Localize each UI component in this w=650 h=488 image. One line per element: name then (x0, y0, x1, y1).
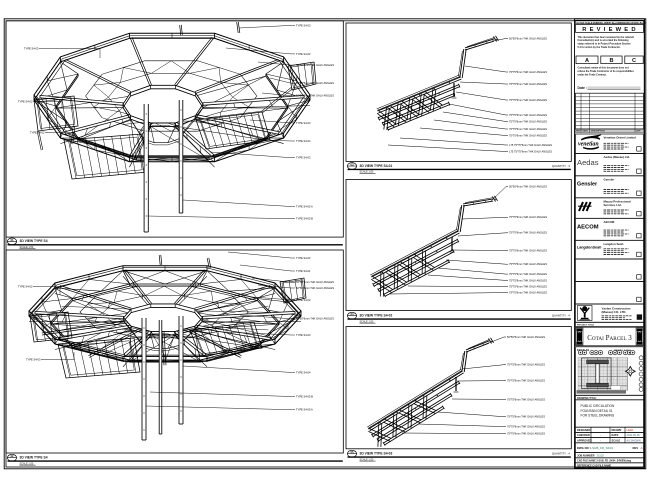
svg-text:50*50*6mm THK GALV ANGLES: 50*50*6mm THK GALV ANGLES (296, 317, 334, 321)
svg-text:3D VIEW TYPE S4-03: 3D VIEW TYPE S4-03 (360, 452, 393, 456)
svg-text:04: 04 (350, 312, 354, 316)
svg-text:TYPE S4-05 B: TYPE S4-05 B (296, 217, 313, 221)
svg-text:L75 75*75*6mm THK GALV ANGLES: L75 75*75*6mm THK GALV ANGLES (509, 143, 552, 147)
svg-text:3-SUB_FD_SK04: 3-SUB_FD_SK04 (590, 446, 614, 450)
svg-text:75*75*6mm THK GALV ANGLES: 75*75*6mm THK GALV ANGLES (509, 262, 547, 266)
svg-text:A: A (585, 58, 589, 64)
svg-text:TYPE S4-03: TYPE S4-03 (296, 333, 311, 337)
svg-text:50*50*6mm THK GALV ANGLES: 50*50*6mm THK GALV ANGLES (509, 36, 547, 40)
svg-text:LEAD: LEAD (627, 428, 634, 432)
svg-text:05: 05 (350, 450, 354, 454)
svg-text:-: - (600, 434, 601, 437)
svg-text:QUANTITY : 4: QUANTITY : 4 (552, 164, 570, 168)
svg-text:TYPE S4-02: TYPE S4-02 (296, 256, 311, 260)
svg-text:APP: APP (636, 130, 641, 133)
svg-text:03: 03 (350, 162, 354, 166)
svg-text:75*75*6mm THK GALV ANGLES: 75*75*6mm THK GALV ANGLES (509, 291, 547, 295)
svg-text:DESIGNED: DESIGNED (577, 428, 591, 432)
svg-text:SCALE: SCALE (612, 438, 621, 442)
svg-text:50*50*6mm THK GALV ANGLES: 50*50*6mm THK GALV ANGLES (296, 81, 334, 85)
svg-text:TYPE S4-03: TYPE S4-03 (26, 357, 41, 361)
svg-text:TYPE S4-03: TYPE S4-03 (24, 46, 39, 50)
svg-text:L75 75*75*6mm THK GALV ANGLES: L75 75*75*6mm THK GALV ANGLES (509, 149, 552, 153)
svg-text:3D VIEW TYPE S4: 3D VIEW TYPE S4 (20, 239, 48, 243)
svg-text:TYPE S4-02: TYPE S4-02 (18, 284, 33, 288)
svg-text:DESCRIPTION: DESCRIPTION (591, 131, 605, 133)
svg-text:TYPE S4-04: TYPE S4-04 (296, 370, 311, 374)
svg-text:CHECKED: CHECKED (577, 433, 590, 437)
svg-text:REVIEWED: REVIEWED (582, 27, 639, 33)
svg-text:75*75*6mm THK GALV ANGLES: 75*75*6mm THK GALV ANGLES (509, 248, 547, 252)
svg-text:under the Trade Contract.: under the Trade Contract. (578, 73, 607, 76)
svg-text:75*75*6mm THK GALV ANGLES: 75*75*6mm THK GALV ANGLES (507, 363, 545, 367)
svg-text:Services Ltd.: Services Ltd. (604, 203, 622, 207)
svg-text:02: 02 (10, 454, 14, 458)
svg-text:75*75*6mm THK GALV ANGLES: 75*75*6mm THK GALV ANGLES (509, 82, 547, 86)
svg-text:Aedas: Aedas (577, 158, 599, 167)
svg-text:75*75*6mm THK GALV ANGLES: 75*75*6mm THK GALV ANGLES (509, 278, 547, 282)
svg-text:3D VIEW TYPE S4-01: 3D VIEW TYPE S4-01 (360, 164, 393, 168)
svg-text:2011-03-15: 2011-03-15 (627, 433, 641, 437)
svg-text:AECOM: AECOM (577, 225, 599, 231)
svg-text:DWG NO: DWG NO (577, 446, 590, 450)
svg-text:AS SHOWN: AS SHOWN (627, 438, 641, 442)
svg-text:50*50*6mm THK GALV ANGLES: 50*50*6mm THK GALV ANGLES (296, 280, 334, 284)
svg-text:TYPE S4-03: TYPE S4-03 (296, 121, 311, 125)
svg-text:SCALE 1:50: SCALE 1:50 (360, 320, 374, 323)
svg-text:75*75*6mm THK GALV ANGLES: 75*75*6mm THK GALV ANGLES (509, 285, 547, 289)
svg-text:SCALE 1:50: SCALE 1:50 (20, 462, 34, 465)
svg-text:75*75*6mm THK GALV ANGLES: 75*75*6mm THK GALV ANGLES (509, 272, 547, 276)
svg-text:50*50*6mm THK GALV ANGLES: 50*50*6mm THK GALV ANGLES (296, 63, 334, 67)
svg-text:75*75*6mm THK GALV ANGLES: 75*75*6mm THK GALV ANGLES (509, 113, 547, 117)
svg-text:QUANTITY : 4: QUANTITY : 4 (552, 314, 570, 318)
svg-text:75*75*6mm THK GALV ANGLES: 75*75*6mm THK GALV ANGLES (509, 215, 547, 219)
svg-text:50*50*6mm THK GALV ANGLES: 50*50*6mm THK GALV ANGLES (507, 335, 545, 339)
svg-text:DATE: DATE (583, 130, 589, 133)
svg-text:TYPE S4-03: TYPE S4-03 (296, 156, 311, 160)
svg-text:Gensler: Gensler (604, 177, 616, 181)
svg-text:TYPE S4-05 A: TYPE S4-05 A (296, 408, 313, 412)
svg-text:75*75*6mm THK GALV ANGLES: 75*75*6mm THK GALV ANGLES (507, 432, 545, 436)
svg-text:31520: 31520 (597, 454, 605, 458)
svg-text:TYPE S4-03: TYPE S4-03 (296, 23, 311, 27)
svg-text:3D VIEW TYPE S4-02: 3D VIEW TYPE S4-02 (360, 314, 393, 318)
svg-text:75*75*6mm THK GALV ANGLES: 75*75*6mm THK GALV ANGLES (509, 133, 547, 137)
svg-text:Date :: Date : (578, 86, 587, 90)
svg-text:Aedas (Macau) Ltd.: Aedas (Macau) Ltd. (604, 155, 631, 159)
svg-text:APPROVED: APPROVED (577, 438, 592, 442)
svg-text:PUBLIC CIRCULATION: PUBLIC CIRCULATION (581, 404, 615, 408)
svg-text:TYPE S4-02: TYPE S4-02 (296, 298, 311, 302)
svg-text:B: B (609, 58, 613, 64)
svg-text:75*75*6mm THK GALV ANGLES: 75*75*6mm THK GALV ANGLES (509, 119, 547, 123)
svg-text:REV: REV (576, 131, 581, 133)
svg-text:01: 01 (10, 238, 14, 242)
svg-text:TYPE S4-01: TYPE S4-01 (296, 269, 311, 273)
svg-text:-: - (600, 439, 601, 442)
svg-text:3D VIEW TYPE S4: 3D VIEW TYPE S4 (20, 456, 48, 460)
svg-text:FOR STEEL DRAWING: FOR STEEL DRAWING (581, 413, 615, 417)
svg-text:PROJECT TITLE: PROJECT TITLE (577, 325, 595, 327)
svg-text:75*75*6mm THK GALV ANGLES: 75*75*6mm THK GALV ANGLES (509, 98, 547, 102)
svg-text:Langdon Seah: Langdon Seah (604, 242, 624, 246)
svg-text:SCALE 1:50: SCALE 1:50 (360, 458, 374, 461)
svg-text:A: A (641, 446, 643, 450)
svg-text:5.4 for action by the Trade Co: 5.4 for action by the Trade Contractor. (578, 46, 621, 49)
svg-text:JOB NUMBER: JOB NUMBER (577, 454, 595, 458)
svg-text:DATE: DATE (612, 433, 619, 437)
svg-text:75*75*6mm THK GALV ANGLES: 75*75*6mm THK GALV ANGLES (509, 231, 547, 235)
svg-text:TYPE S4-04: TYPE S4-04 (296, 139, 311, 143)
svg-text:LangdonSeah: LangdonSeah (577, 246, 602, 250)
svg-text:REV: REV (633, 446, 639, 450)
svg-text:venetian: venetian (578, 142, 599, 148)
svg-text:COTAI PARCEL 3: COTAI PARCEL 3 (587, 334, 632, 342)
svg-text:50*50*6mm THK GALV ANGLES: 50*50*6mm THK GALV ANGLES (296, 94, 334, 98)
svg-text:75*75*6mm THK GALV ANGLES: 75*75*6mm THK GALV ANGLES (507, 415, 545, 419)
svg-text:REFERENCE CAD FILE NAME: REFERENCE CAD FILE NAME (577, 465, 612, 468)
svg-text:50*50*6mm THK GALV ANGLES: 50*50*6mm THK GALV ANGLES (296, 286, 334, 290)
svg-text:75*75*6mm THK GALV ANGLES: 75*75*6mm THK GALV ANGLES (509, 70, 547, 74)
svg-text:TYPE S4-02: TYPE S4-02 (30, 130, 45, 134)
svg-text:TYPE S4-02: TYPE S4-02 (18, 99, 33, 103)
svg-text:Venetian Orient Limited: Venetian Orient Limited (604, 136, 637, 140)
svg-text:TYPE S4-02: TYPE S4-02 (296, 52, 311, 56)
svg-text:Gensler: Gensler (577, 182, 598, 188)
svg-text:AECOM: AECOM (604, 220, 615, 224)
svg-text:50*50*6mm THK GALV ANGLES: 50*50*6mm THK GALV ANGLES (509, 185, 547, 189)
svg-text:QUANTITY : 4: QUANTITY : 4 (552, 452, 570, 456)
svg-text:TYPE S4-05 B: TYPE S4-05 B (296, 394, 313, 398)
svg-text:DRAWN: DRAWN (612, 428, 622, 432)
svg-text:75*75*6mm THK GALV ANGLES: 75*75*6mm THK GALV ANGLES (509, 127, 547, 131)
svg-text:FOUNTAIN DETAIL 01: FOUNTAIN DETAIL 01 (581, 409, 613, 413)
svg-text:TYPE S4-05 A: TYPE S4-05 A (296, 204, 313, 208)
svg-text:C: C (632, 58, 636, 64)
svg-text:DO NOT SCALE DRAWING. VERIFY A: DO NOT SCALE DRAWING. VERIFY ALL DIMENSI… (577, 21, 647, 24)
svg-text:75*75*6mm THK GALV ANGLES: 75*75*6mm THK GALV ANGLES (507, 379, 545, 383)
svg-text:75*75*6mm THK GALV ANGLES: 75*75*6mm THK GALV ANGLES (507, 397, 545, 401)
svg-text:DRAWING TITLE:: DRAWING TITLE: (577, 397, 597, 400)
svg-text:(Macau) CO. LTD.: (Macau) CO. LTD. (602, 310, 627, 314)
svg-text:75*75*6mm THK GALV ANGLES: 75*75*6mm THK GALV ANGLES (507, 425, 545, 429)
svg-text:CAD FILE NAME 3-SUB_FD_SK04_S4: CAD FILE NAME 3-SUB_FD_SK04_S4VIEW.dwg (577, 460, 632, 463)
